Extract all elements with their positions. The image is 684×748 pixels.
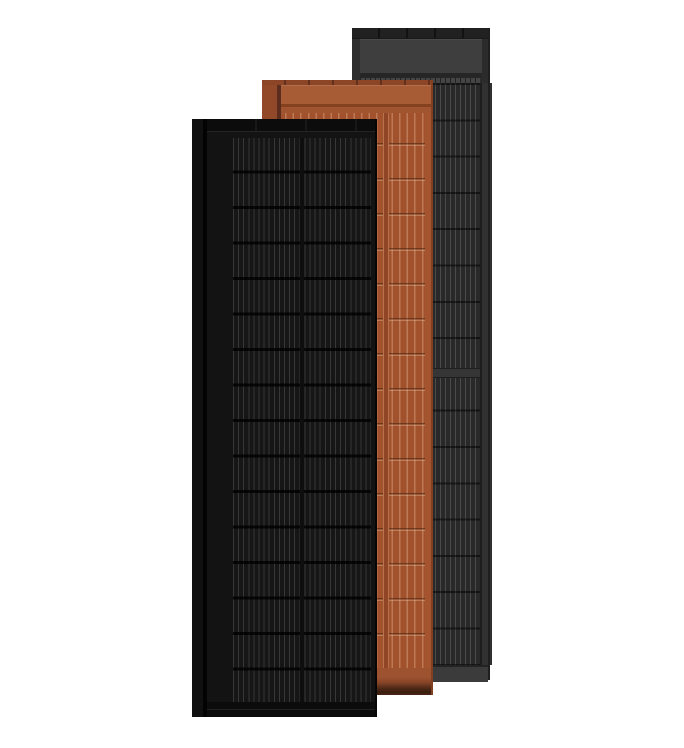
solar-panel-matte-black: [192, 119, 377, 717]
panel-right-edge: [431, 80, 433, 695]
panel-right-edge: [375, 119, 377, 717]
cell-column-divider: [300, 138, 304, 702]
product-scene: [0, 0, 684, 748]
panel-top-frame: [207, 119, 377, 132]
cell-column-divider: [383, 113, 389, 668]
panel-rail-gap: [203, 119, 207, 717]
solar-cell-grid: [233, 138, 371, 702]
panel-right-edge: [488, 28, 490, 680]
panel-left-rail: [192, 119, 203, 717]
panel-footer: [207, 702, 377, 717]
panel-right-margin: [480, 83, 492, 665]
panel-top-frame: [352, 28, 490, 39]
panel-header-band: [360, 39, 482, 73]
panel-header-band: [281, 85, 433, 104]
